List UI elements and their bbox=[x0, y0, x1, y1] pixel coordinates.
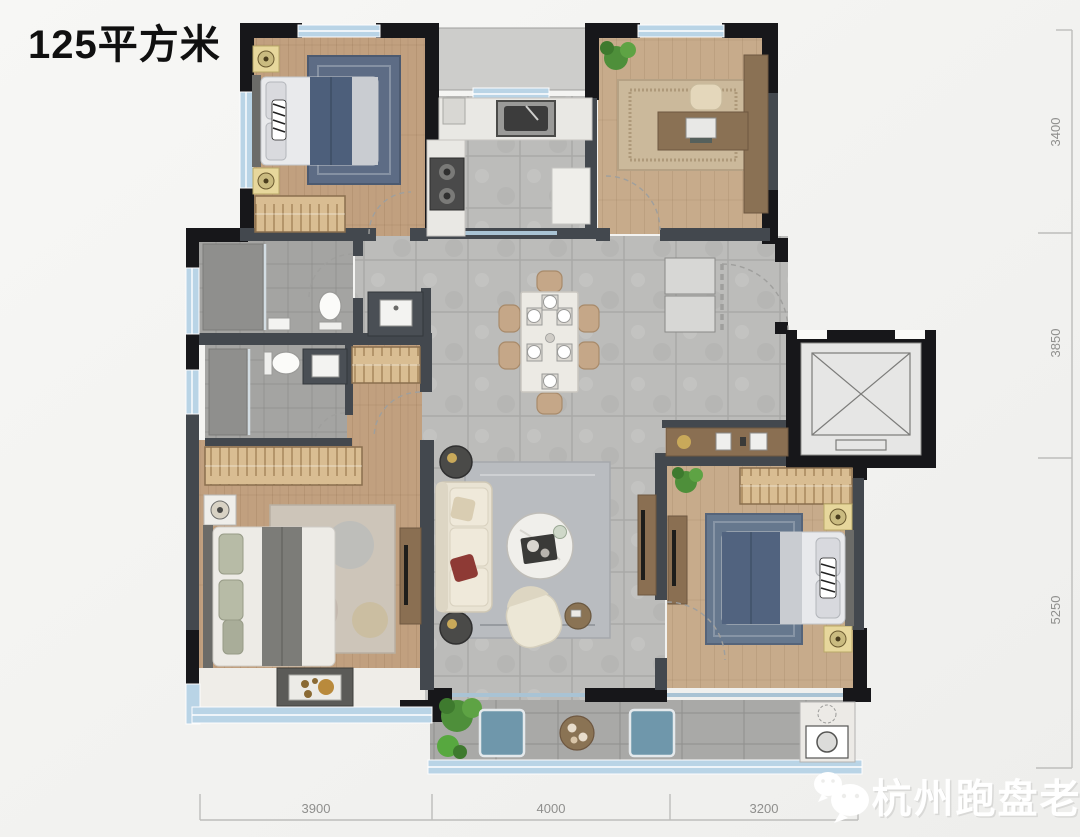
master-left-window bbox=[186, 370, 199, 414]
shaft-block bbox=[437, 28, 587, 90]
dining-chair bbox=[578, 305, 599, 332]
tray bbox=[520, 534, 557, 564]
coffee-table bbox=[507, 513, 573, 579]
bedroom-east-tv-console bbox=[668, 516, 687, 604]
elevator-core bbox=[786, 330, 936, 468]
guest-toilet bbox=[319, 292, 342, 330]
dining-chair bbox=[578, 342, 599, 369]
master-toilet bbox=[264, 352, 300, 375]
dining-chair bbox=[537, 393, 562, 414]
sofa bbox=[436, 482, 492, 612]
bed bbox=[203, 525, 335, 668]
outdoor-chair bbox=[480, 710, 524, 756]
guest-bath-window bbox=[186, 268, 199, 334]
kitchen-wall-cabinet bbox=[443, 98, 465, 124]
dim-bottom-2: 4000 bbox=[537, 801, 566, 816]
dim-right-3: 5250 bbox=[1048, 596, 1063, 625]
dim-right-2: 3850 bbox=[1048, 329, 1063, 358]
kitchen-stove bbox=[430, 158, 464, 210]
watermark-text: 杭州跑盘老司机 bbox=[872, 777, 1080, 822]
hall-vanity bbox=[368, 292, 423, 336]
living-tv-console bbox=[638, 495, 656, 595]
bedroom-north-top-window bbox=[298, 25, 380, 37]
guest-bath-shelf bbox=[268, 318, 290, 330]
tv bbox=[404, 545, 408, 605]
guest-shower bbox=[203, 244, 263, 330]
floor-plan-image: 3400 3850 5250 3900 4000 3200 125平方米 杭州跑… bbox=[0, 0, 1080, 837]
shoe-cabinet bbox=[665, 258, 715, 294]
side-table bbox=[440, 446, 472, 478]
laundry-unit bbox=[800, 702, 855, 762]
bedroom-north-left-window bbox=[240, 92, 253, 188]
dim-bottom-3: 3200 bbox=[750, 801, 779, 816]
throw-pillow bbox=[450, 496, 476, 522]
dining-chair bbox=[499, 305, 520, 332]
outdoor-chair bbox=[630, 710, 674, 756]
bed bbox=[252, 75, 378, 167]
side-table bbox=[440, 612, 472, 644]
outdoor-table bbox=[560, 716, 594, 750]
dim-bottom-1: 3900 bbox=[302, 801, 331, 816]
dim-right-1: 3400 bbox=[1048, 118, 1063, 147]
study-top-window bbox=[638, 25, 724, 37]
balcony-railing bbox=[428, 760, 862, 774]
dining-chair bbox=[499, 342, 520, 369]
desk-chair bbox=[690, 84, 722, 110]
laptop bbox=[686, 118, 716, 143]
tv bbox=[641, 510, 645, 580]
tv bbox=[672, 530, 676, 586]
dining-chair bbox=[537, 271, 562, 292]
elevator-door bbox=[836, 440, 886, 450]
kitchen-fridge bbox=[552, 168, 590, 224]
hall-console bbox=[666, 428, 788, 456]
master-tv-console bbox=[400, 528, 421, 624]
bench-with-tray bbox=[277, 668, 353, 706]
master-shower bbox=[209, 349, 247, 435]
bed bbox=[722, 530, 854, 626]
shoe-cabinet bbox=[665, 296, 715, 332]
plan-title: 125平方米 bbox=[28, 23, 221, 67]
master-vanity bbox=[303, 349, 347, 384]
